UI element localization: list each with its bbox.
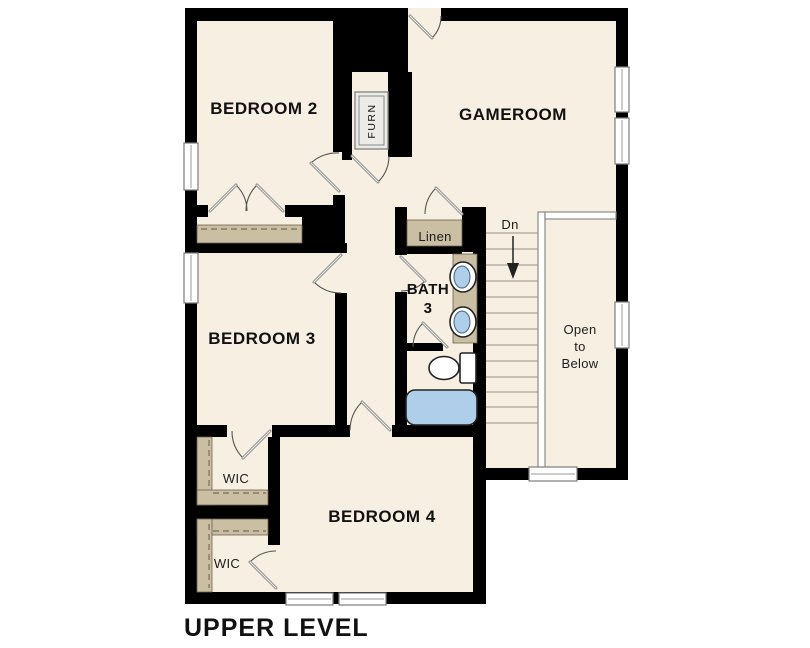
wall-segment: [185, 592, 485, 604]
wall-segment: [333, 8, 345, 152]
wall-segment: [185, 205, 208, 217]
bath3-label-line1: BATH: [407, 281, 450, 298]
bathtub: [406, 390, 477, 425]
wall-segment: [407, 246, 462, 254]
bedroom2-label: BEDROOM 2: [210, 99, 317, 118]
sink-basin: [454, 311, 470, 333]
toilet-tank: [460, 353, 476, 383]
open-to-below-line1: Open: [563, 322, 596, 337]
wall-segment: [185, 243, 347, 253]
bedroom3-label: BEDROOM 3: [208, 329, 315, 348]
wic-lower-label: WIC: [214, 556, 240, 571]
stairs-dn-label: Dn: [501, 217, 518, 232]
wall-segment: [185, 425, 227, 437]
floor-plan-page: BEDROOM 2 GAMEROOM BEDROOM 3 BEDROOM 4 B…: [0, 0, 810, 648]
wall-segment: [285, 205, 345, 217]
bath3-label-line2: 3: [424, 300, 433, 317]
railing: [538, 212, 545, 470]
wall-segment: [335, 293, 347, 437]
wic-upper-shelf-bottom: [197, 490, 268, 505]
bedroom2-closet-shelf: [197, 225, 302, 243]
gameroom-label: GAMEROOM: [459, 105, 567, 124]
toilet-bowl: [429, 357, 459, 380]
floor-plan: BEDROOM 2 GAMEROOM BEDROOM 3 BEDROOM 4 B…: [0, 0, 810, 648]
open-to-below-line3: Below: [562, 356, 599, 371]
wic-upper-label: WIC: [223, 471, 249, 486]
wall-segment: [272, 425, 350, 437]
wall-segment: [395, 207, 407, 255]
chase-block: [335, 8, 408, 72]
railing: [545, 212, 616, 219]
wall-segment: [441, 8, 628, 21]
sink-basin: [454, 266, 470, 288]
wall-segment: [388, 72, 412, 157]
wall-segment: [185, 505, 280, 519]
open-to-below-line2: to: [574, 339, 585, 354]
wic-lower-shelf-left: [197, 519, 212, 592]
linen-label: Linen: [418, 229, 451, 244]
plan-title: UPPER LEVEL: [184, 614, 369, 642]
bedroom4-label: BEDROOM 4: [328, 507, 436, 526]
furnace-label: FURN: [366, 103, 378, 138]
wall-segment: [462, 207, 486, 252]
wall-segment: [392, 425, 486, 437]
wall-segment: [395, 343, 443, 351]
wall-segment: [268, 437, 280, 545]
